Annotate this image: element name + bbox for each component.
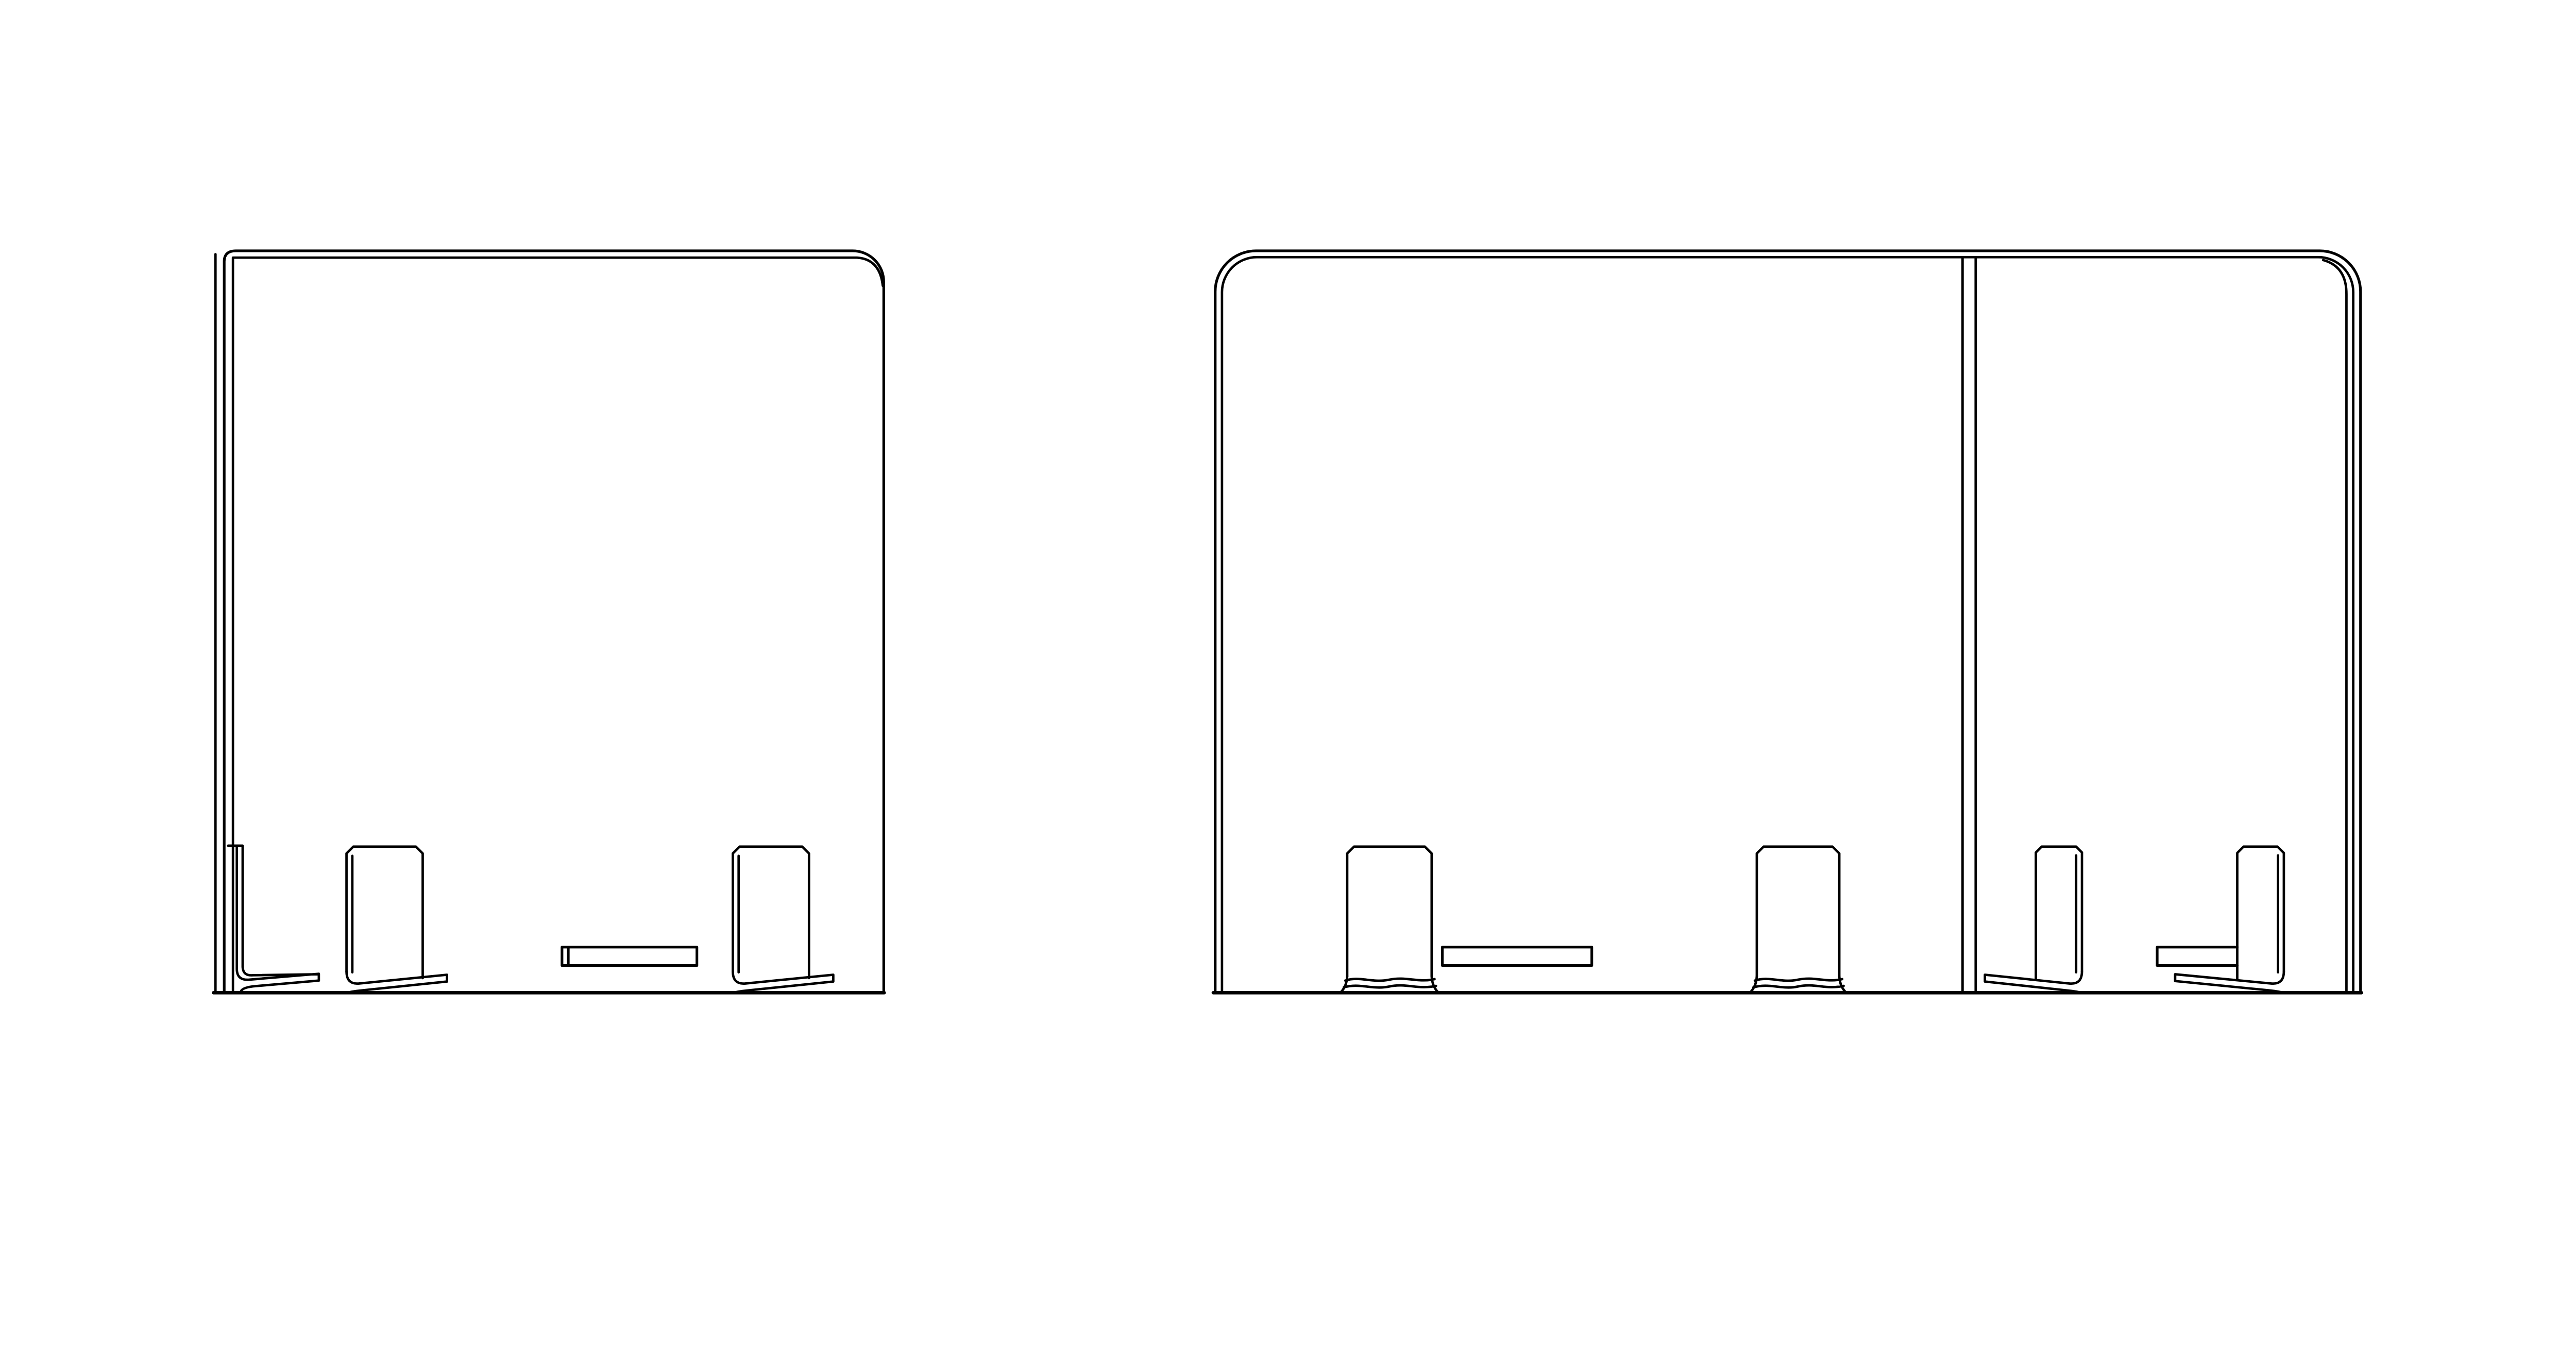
wall-inner-line [233,258,883,993]
right-sheet-inner-line [2323,260,2346,993]
pin-1-body [1347,847,1432,977]
pin-a-body [347,847,423,978]
pin-2-crimp-foot [1750,976,1846,993]
left-housing-side-view [213,251,884,993]
wall-mount-foot [228,846,319,992]
anchor-slot [562,947,697,966]
pin-2-body [1757,847,1839,977]
pin-b-bent-foot [733,971,833,993]
pin-1-crimp-foot [1341,976,1438,993]
housing-outline [224,251,884,993]
housing-outline-outer [1215,251,2361,993]
pin-4-bent-foot [2175,971,2284,993]
pin-3-bent-foot [1985,971,2082,993]
pin-b-body [733,847,809,978]
pin-3-body [2036,847,2082,979]
anchor-slot-1 [1443,947,1592,966]
pin-4-body [2238,847,2284,979]
pin-a-bent-foot [347,971,447,993]
housing-outline-inner [1222,257,2353,993]
drawing-stage [0,0,2576,1288]
divider-wall [1962,258,1975,993]
right-housing-side-view [1213,251,2362,993]
anchor-slot-2 [2157,947,2237,966]
technical-line-drawing [0,0,2576,1288]
